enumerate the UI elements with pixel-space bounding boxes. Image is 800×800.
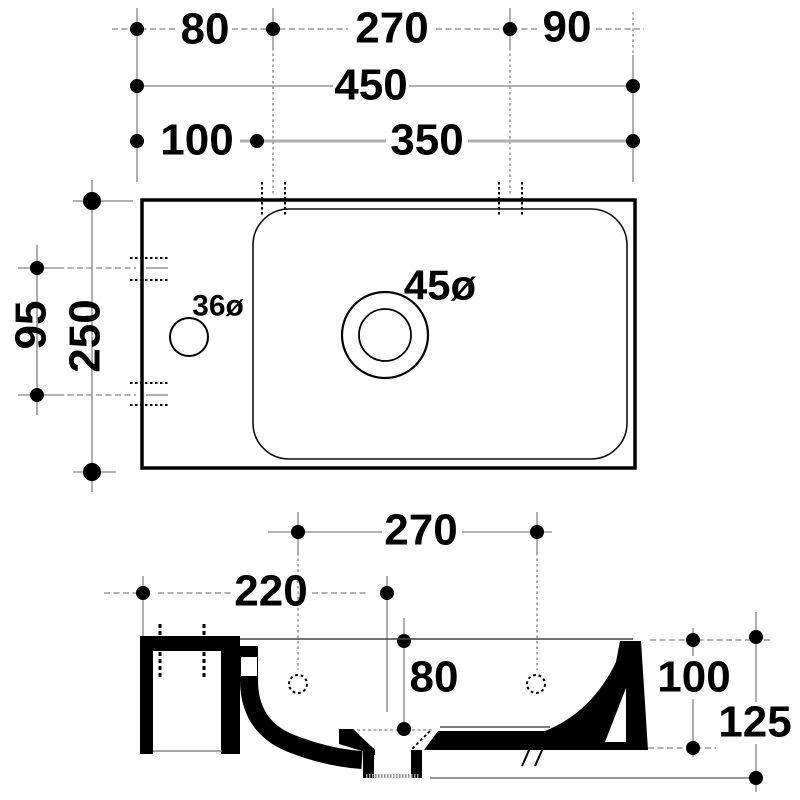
back-wall-left — [140, 636, 153, 754]
dim-label-450: 450 — [334, 61, 407, 110]
dim-label-270-section: 270 — [384, 506, 457, 555]
dim-label-270-top: 270 — [355, 4, 428, 53]
back-box-right-wall — [221, 651, 240, 754]
tap-hole-circle — [170, 318, 208, 356]
dim-label-125: 125 — [718, 698, 791, 747]
dim-label-95: 95 — [7, 301, 56, 350]
fixing-hole-right — [527, 675, 545, 693]
outlet-right-wall — [411, 750, 422, 778]
fixing-hole-left — [289, 675, 307, 693]
bowl-outline-plan — [253, 209, 627, 459]
dim-label-80-top: 80 — [181, 5, 230, 54]
section-view-body — [140, 624, 648, 778]
waste-diameter-label: 45ø — [404, 262, 477, 309]
dim-label-250: 250 — [61, 299, 110, 372]
back-rim-bar — [140, 636, 240, 651]
outlet-left-wall — [363, 748, 374, 778]
break-marks — [522, 748, 543, 766]
tap-hole-label: 36ø — [192, 290, 244, 323]
section-fixing-dashes — [160, 624, 204, 680]
dim-label-90-top: 90 — [543, 3, 592, 52]
plan-view-body — [130, 182, 635, 468]
basin-technical-drawing: 80 270 90 450 100 350 95 250 36ø 45ø 270… — [0, 0, 800, 800]
dim-label-220: 220 — [234, 567, 307, 616]
overflow-slot — [241, 657, 257, 676]
dim-label-100-top: 100 — [160, 116, 233, 165]
dim-label-80-section: 80 — [410, 653, 459, 702]
dim-label-350: 350 — [390, 116, 463, 165]
dim-label-100-section: 100 — [657, 653, 730, 702]
